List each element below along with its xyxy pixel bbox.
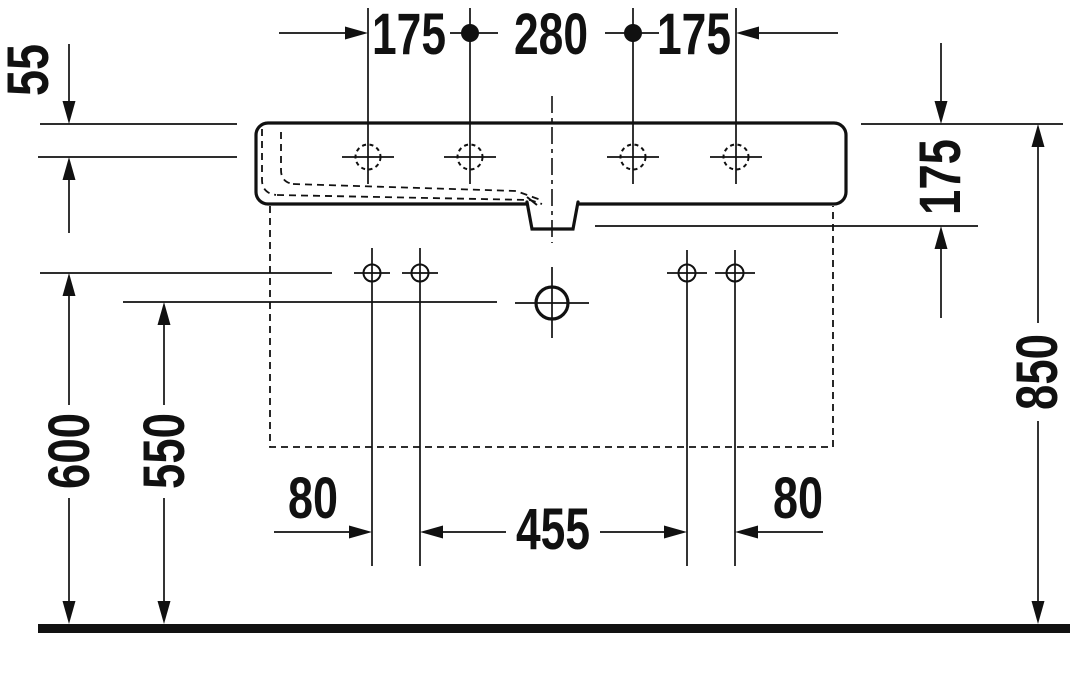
dim-label-drain-height: 550 bbox=[132, 413, 197, 489]
drain-height-dimension: 550 bbox=[123, 302, 497, 624]
arrowhead-left-icon bbox=[420, 526, 443, 539]
dim-label-tap-hole-right: 175 bbox=[657, 2, 731, 67]
arrowhead-left-icon bbox=[735, 526, 758, 539]
dim-label-bolt-left-spacing: 80 bbox=[288, 466, 338, 531]
arrowhead-up-icon bbox=[63, 273, 76, 296]
dimension-dot-icon bbox=[461, 24, 479, 42]
arrowhead-right-icon bbox=[345, 27, 368, 40]
arrowhead-down-icon bbox=[935, 101, 948, 124]
floor-line bbox=[38, 624, 1070, 633]
arrowhead-up-icon bbox=[158, 302, 171, 325]
dim-label-tap-hole-center: 280 bbox=[514, 2, 588, 67]
dim-label-overall-height: 850 bbox=[1005, 334, 1070, 410]
front-edge-dimension: 55 bbox=[0, 44, 237, 233]
arrowhead-up-icon bbox=[1032, 124, 1045, 147]
arrowhead-up-icon bbox=[63, 157, 76, 180]
arrowhead-down-icon bbox=[63, 101, 76, 124]
dimension-dot-icon bbox=[624, 24, 642, 42]
technical-drawing-page: 175 280 175 55 175 850 bbox=[0, 0, 1076, 688]
dim-label-bolt-center-span: 455 bbox=[516, 497, 590, 562]
drain-connection-hole bbox=[515, 267, 589, 338]
arrowhead-down-icon bbox=[1032, 601, 1045, 624]
dim-label-tap-hole-left: 175 bbox=[372, 2, 446, 67]
dim-label-front-edge: 55 bbox=[0, 44, 61, 96]
dim-label-bolt-right-spacing: 80 bbox=[773, 466, 823, 531]
arrowhead-right-icon bbox=[664, 526, 687, 539]
arrowhead-right-icon bbox=[349, 526, 372, 539]
washbasin-dimension-diagram: 175 280 175 55 175 850 bbox=[0, 0, 1076, 688]
dim-label-rim-to-outlet: 175 bbox=[908, 139, 973, 215]
arrowhead-left-icon bbox=[736, 27, 759, 40]
basin-outline bbox=[256, 123, 846, 204]
overall-height-dimension: 850 bbox=[1005, 124, 1070, 624]
top-dimension-chain: 175 280 175 bbox=[279, 2, 838, 67]
bottom-dimension-chain: 80 455 80 bbox=[274, 466, 823, 562]
dim-label-rim-height: 600 bbox=[37, 413, 102, 489]
arrowhead-down-icon bbox=[158, 601, 171, 624]
arrowhead-up-icon bbox=[935, 226, 948, 249]
arrowhead-down-icon bbox=[63, 601, 76, 624]
